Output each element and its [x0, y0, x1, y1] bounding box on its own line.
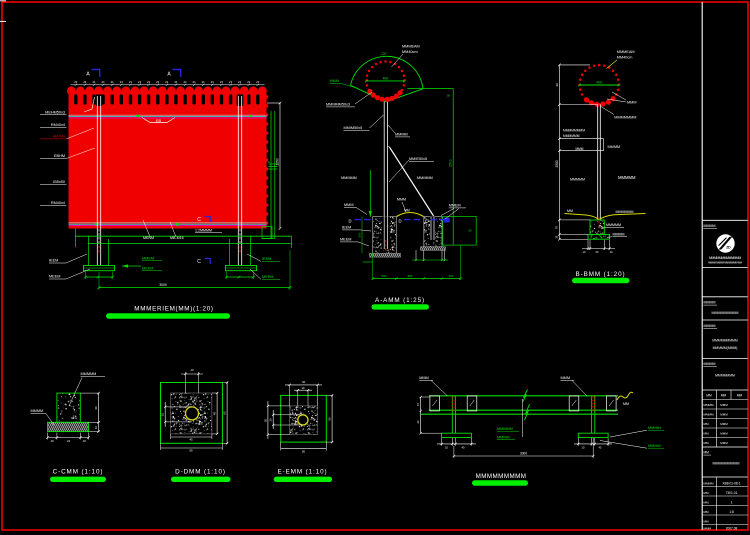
svg-text:MMMM: MMMM	[704, 224, 716, 228]
svg-text:MM: MM	[704, 451, 710, 455]
svg-text:C: C	[197, 217, 201, 223]
svg-text:21: 21	[193, 80, 197, 84]
svg-text:MB-M16: MB-M16	[170, 236, 184, 240]
svg-text:MMM: MMM	[720, 422, 728, 426]
svg-text:21: 21	[247, 80, 251, 84]
svg-text:70: 70	[554, 226, 558, 230]
svg-text:E: E	[425, 219, 428, 224]
svg-text:40: 40	[555, 83, 559, 87]
svg-text:MMEM: MMEM	[142, 256, 154, 260]
svg-text:2007.08: 2007.08	[726, 526, 738, 530]
svg-text:45: 45	[189, 438, 193, 442]
svg-text:IEEM: IEEM	[262, 257, 271, 261]
svg-text:MM: MM	[704, 431, 709, 435]
svg-text:MMMMM: MMMMM	[497, 427, 513, 431]
svg-text:21: 21	[184, 80, 188, 84]
svg-text:MM: MM	[704, 500, 709, 504]
svg-text:MM40cm: MM40cm	[402, 50, 418, 54]
svg-text:MMMM: MMMM	[648, 426, 661, 430]
svg-text:400: 400	[383, 76, 389, 80]
svg-text:65: 65	[468, 229, 472, 233]
svg-text:MEEM: MEEM	[262, 275, 273, 279]
svg-text:500: 500	[358, 232, 362, 237]
svg-text:IEEM: IEEM	[49, 259, 58, 263]
svg-text:10: 10	[51, 439, 55, 443]
svg-text:30: 30	[302, 380, 306, 384]
svg-text:MMMMM: MMMMM	[417, 176, 433, 180]
svg-text:MMM: MMM	[397, 198, 406, 202]
svg-text:21: 21	[220, 80, 224, 84]
svg-text:137: 137	[381, 52, 387, 56]
svg-text:2500: 2500	[448, 159, 452, 167]
svg-text:21: 21	[92, 80, 96, 84]
svg-text:MMM: MMM	[720, 412, 728, 416]
svg-text:MMM: MMM	[561, 376, 571, 380]
svg-text:2500: 2500	[555, 160, 559, 167]
svg-text:MMMMMM: MMMMMM	[616, 210, 634, 214]
svg-text:65: 65	[189, 449, 193, 453]
svg-text:C: C	[197, 259, 201, 265]
svg-text:450: 450	[449, 274, 454, 278]
svg-text:10: 10	[301, 386, 305, 390]
svg-text:10: 10	[161, 413, 165, 417]
svg-text:MMEM: MMEM	[449, 204, 461, 208]
svg-text:MMM: MMM	[720, 403, 728, 407]
svg-text:EBHM: EBHM	[54, 154, 65, 158]
svg-text:MMMMMMMM: MMMMMMMM	[563, 129, 585, 133]
svg-text:MMMMM: MMMMM	[606, 223, 621, 227]
svg-text:21: 21	[111, 80, 115, 84]
svg-text:A-AMM (1:25): A-AMM (1:25)	[375, 297, 425, 304]
svg-text:E-EMM (1:10): E-EMM (1:10)	[278, 469, 328, 476]
svg-text:10: 10	[269, 418, 273, 422]
svg-text:MMM: MMM	[720, 441, 728, 445]
svg-text:D: D	[348, 219, 351, 224]
svg-text:MM: MM	[704, 422, 709, 426]
svg-text:MMMMM50x3: MMMMM50x3	[326, 103, 350, 107]
svg-text:MMMM: MMMM	[704, 481, 714, 485]
svg-text:MM: MM	[737, 393, 743, 397]
svg-text:21: 21	[120, 80, 124, 84]
svg-text:21: 21	[238, 80, 242, 84]
svg-text:MM: MM	[706, 393, 712, 397]
svg-text:MMM: MMM	[344, 203, 354, 207]
svg-text:ZD: ZD	[726, 245, 731, 249]
svg-text:21: 21	[138, 80, 142, 84]
svg-text:MMMM: MMMM	[648, 444, 661, 448]
svg-text:21: 21	[174, 80, 178, 84]
svg-text:MMM: MMM	[419, 376, 429, 380]
svg-text:MMMMMMMMM: MMMMMMMMM	[712, 339, 738, 343]
svg-text:1: 1	[731, 500, 733, 504]
svg-text:21: 21	[202, 80, 206, 84]
svg-text:MMIM50x5: MMIM50x5	[344, 126, 363, 130]
svg-text:MMMM: MMMM	[613, 232, 625, 236]
svg-text:B-BMM (1:20): B-BMM (1:20)	[576, 271, 626, 278]
svg-text:MMMM: MMMM	[31, 409, 44, 413]
svg-text:AM-M4: AM-M4	[53, 135, 65, 139]
svg-text:XB8-01-08-1: XB8-01-08-1	[722, 481, 740, 485]
svg-text:MEHM50x3: MEHM50x3	[45, 110, 65, 114]
svg-text:50: 50	[328, 417, 332, 421]
svg-text:EB: EB	[156, 118, 162, 123]
svg-text:D-DMM (1:10): D-DMM (1:10)	[175, 469, 226, 476]
svg-text:MMMM: MMMM	[704, 362, 716, 366]
svg-text:3000: 3000	[520, 452, 527, 456]
svg-text:50: 50	[302, 449, 306, 453]
svg-text:MMM: MMM	[720, 431, 728, 435]
svg-text:MMMM: MMMM	[608, 145, 621, 149]
svg-text:MM40cm: MM40cm	[617, 56, 633, 60]
svg-text:IEEM: IEEM	[342, 226, 351, 230]
svg-text:MMMM: MMMM	[395, 133, 408, 137]
svg-text:MMMMMMMMM: MMMMMMMMM	[712, 311, 739, 315]
svg-text:MMMM: MMMM	[704, 324, 716, 328]
svg-text:MMMMM: MMMMM	[618, 175, 636, 180]
svg-text:1:8: 1:8	[729, 510, 734, 514]
svg-text:D: D	[398, 219, 401, 224]
svg-text:MMMMMMMMM: MMMMMMMMM	[476, 473, 527, 480]
svg-text:21: 21	[74, 80, 78, 84]
svg-text:MM: MM	[567, 209, 573, 213]
svg-text:MMMMM: MMMMM	[570, 178, 585, 182]
svg-text:MMM: MMM	[330, 79, 340, 83]
svg-text:21: 21	[156, 80, 160, 84]
svg-text:MMMM: MMMM	[497, 435, 510, 439]
svg-text:MMMM: MMMM	[704, 412, 714, 416]
svg-text:21: 21	[102, 80, 106, 84]
svg-text:3000: 3000	[159, 283, 167, 287]
svg-text:MMMM MMMM MMMMMMM MM: MMMM MMMM MMMMMMM MM	[708, 262, 742, 265]
svg-text:10: 10	[94, 426, 98, 430]
svg-text:400: 400	[596, 80, 602, 84]
svg-text:MMMMM(MMM): MMMMM(MMM)	[713, 346, 738, 350]
svg-text:21: 21	[211, 80, 215, 84]
svg-text:MMM: MMM	[704, 526, 712, 530]
svg-text:MMMMMMMMMMMMM: MMMMMMMMMMMMM	[709, 256, 741, 260]
svg-text:21: 21	[147, 80, 151, 84]
svg-text:MM: MM	[704, 441, 709, 445]
svg-text:MMMMM: MMMMM	[341, 176, 357, 180]
svg-text:21: 21	[129, 80, 133, 84]
svg-text:MMMM: MMMM	[704, 301, 716, 305]
svg-text:C-CMM (1:10): C-CMM (1:10)	[53, 469, 104, 476]
svg-text:65: 65	[223, 411, 227, 415]
svg-text:800: 800	[408, 274, 413, 278]
svg-text:45: 45	[213, 412, 217, 416]
svg-text:1:2MMMM: 1:2MMMM	[195, 228, 212, 232]
svg-text:10: 10	[83, 439, 87, 443]
svg-text:MM: MM	[704, 519, 709, 523]
svg-text:MEEM: MEEM	[340, 238, 351, 242]
svg-text:MMMMMM: MMMMMM	[563, 134, 580, 138]
svg-text:15: 15	[554, 235, 558, 239]
svg-text:7301-01: 7301-01	[726, 491, 738, 495]
svg-text:MMMERIEM(MM)(1:20): MMMERIEM(MM)(1:20)	[134, 306, 213, 313]
svg-text:MMMMM: MMMMM	[81, 372, 97, 376]
svg-text:30: 30	[263, 419, 267, 423]
svg-text:MM: MM	[704, 510, 709, 514]
svg-text:MMMMMMMMM: MMMMMMMMM	[713, 462, 740, 466]
svg-text:MMMEAM: MMMEAM	[402, 45, 420, 49]
svg-text:MM: MM	[623, 402, 629, 406]
svg-text:50: 50	[447, 94, 451, 98]
svg-text:1250: 1250	[276, 158, 280, 166]
svg-text:30: 30	[94, 406, 98, 410]
svg-text:MMMEAM: MMMEAM	[617, 50, 635, 54]
svg-text:MENM: MENM	[143, 236, 154, 240]
svg-text:21: 21	[229, 80, 233, 84]
svg-text:21: 21	[256, 80, 260, 84]
svg-text:MM: MM	[721, 393, 727, 397]
svg-text:MMM: MMM	[576, 147, 584, 151]
svg-text:21: 21	[165, 80, 169, 84]
svg-text:24: 24	[67, 439, 71, 443]
svg-text:MM: MM	[704, 491, 709, 495]
svg-text:10: 10	[190, 368, 194, 372]
svg-text:MMM: MMM	[627, 101, 637, 105]
svg-text:RM40x4: RM40x4	[51, 201, 65, 205]
svg-text:21: 21	[83, 80, 87, 84]
svg-text:RM40x4: RM40x4	[51, 123, 65, 127]
svg-text:MEEM: MEEM	[49, 275, 60, 279]
svg-text:500: 500	[382, 274, 387, 278]
svg-text:MMMM: MMMM	[704, 403, 714, 407]
svg-text:MMIE50x5: MMIE50x5	[409, 157, 427, 161]
svg-text:MMMMMMM: MMMMMMM	[715, 374, 735, 378]
svg-text:MMMMMMM: MMMMMMM	[614, 116, 636, 120]
svg-text:MEEM: MEEM	[142, 266, 153, 270]
svg-text:IB5x50: IB5x50	[53, 180, 65, 184]
